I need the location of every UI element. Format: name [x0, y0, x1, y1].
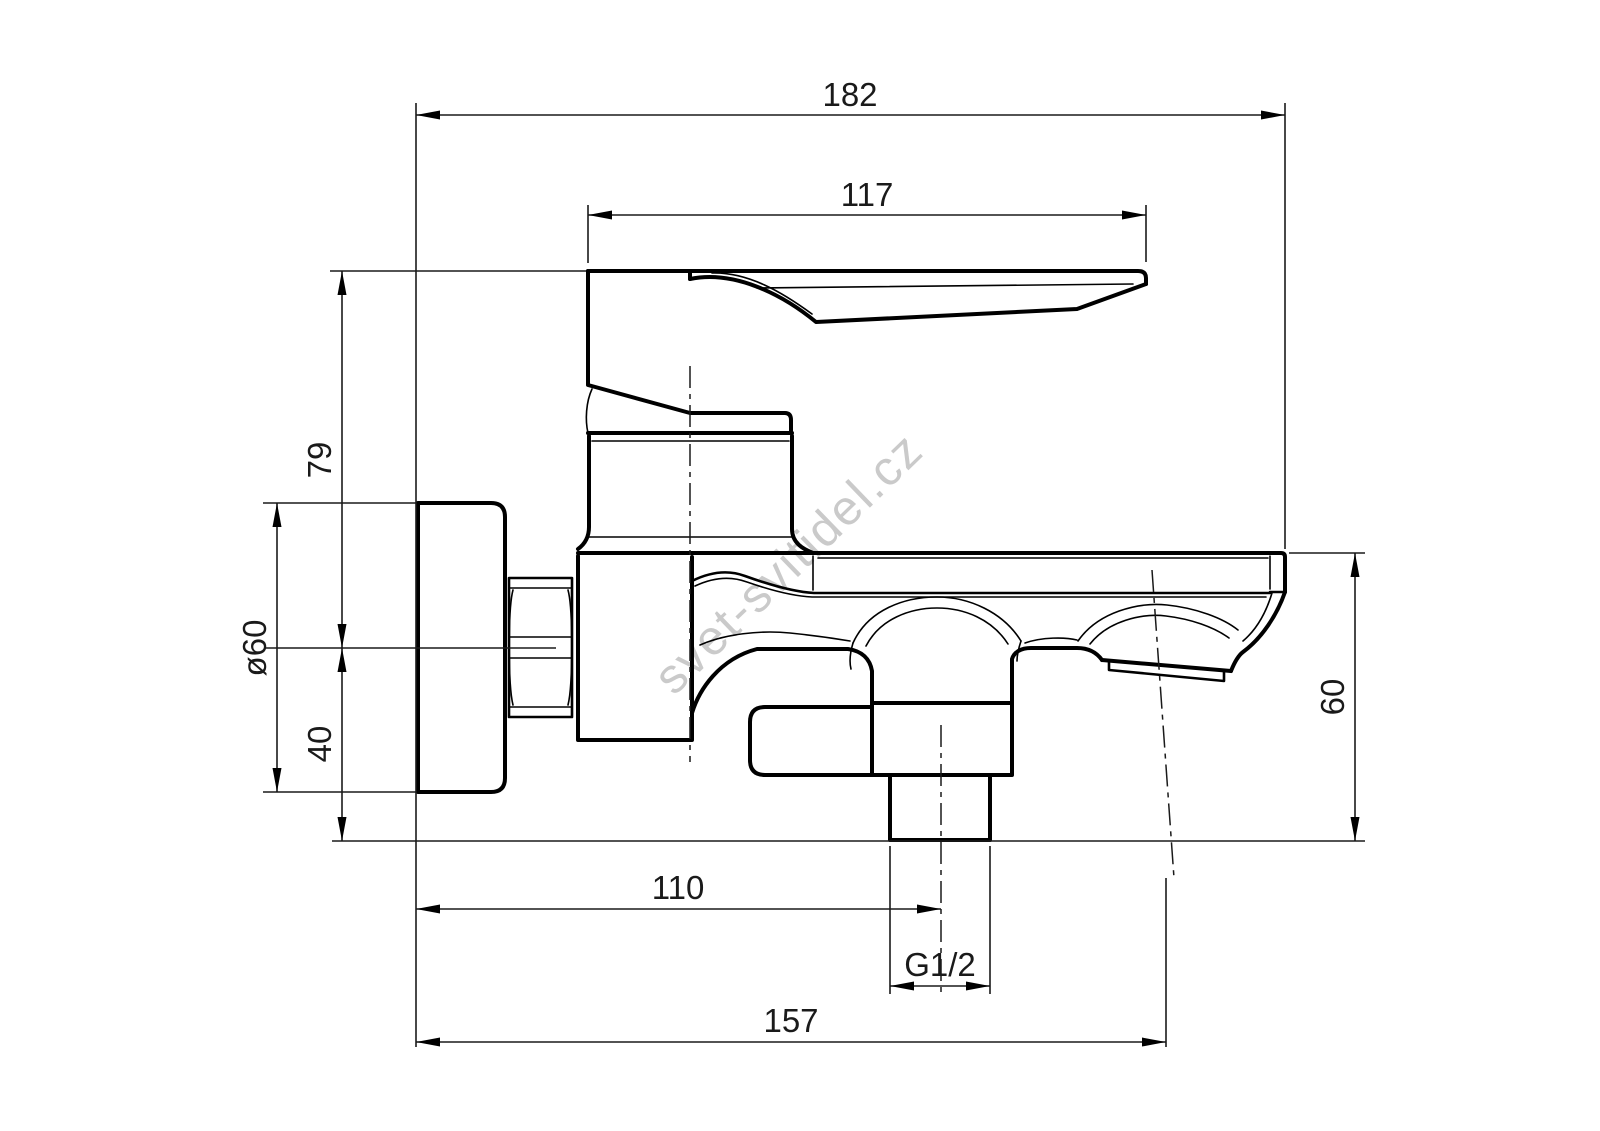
- arch1-base-edges: [850, 641, 1021, 669]
- lever-far-edge: [757, 284, 1133, 288]
- arrow-157-left: [416, 1038, 440, 1047]
- shoulder-far-edge-mid: [1025, 638, 1077, 643]
- spout-end-curve: [1231, 592, 1285, 671]
- arrow-40-top: [338, 648, 347, 672]
- watermark-text: svet-svitidel.cz: [644, 422, 934, 704]
- technical-drawing-canvas: svet-svitidel.cz: [0, 0, 1600, 1131]
- arrow-117-right: [1122, 211, 1146, 220]
- arch2-inner: [1090, 615, 1229, 644]
- cartridge-collar-left: [578, 436, 589, 549]
- spout-end-inner: [1243, 593, 1272, 641]
- dim-label-117: 117: [841, 176, 894, 213]
- cap-left-arc: [586, 389, 592, 433]
- arrow-60-bottom: [1351, 817, 1360, 841]
- center-lines: [264, 366, 1174, 996]
- arrow-60-top: [1351, 553, 1360, 577]
- arch1-outer: [853, 597, 1021, 643]
- dimension-lines: [277, 115, 1355, 1042]
- dim-label-110: 110: [652, 869, 705, 906]
- outlet-block: [872, 703, 1012, 775]
- dimension-arrows: [273, 111, 1360, 1047]
- diverter-knob: [750, 707, 872, 775]
- bath-mixer-outline: [418, 271, 1285, 840]
- spout-underside-mid: [1012, 648, 1102, 703]
- dim-label-182: 182: [822, 76, 877, 113]
- watermark: svet-svitidel.cz: [644, 422, 934, 704]
- dim-label-157: 157: [763, 1002, 818, 1039]
- dim-label-79: 79: [301, 442, 338, 479]
- shower-outlet-pipe: [890, 775, 990, 840]
- arrow-79-bottom: [338, 624, 347, 648]
- arrow-182-left: [416, 111, 440, 120]
- arrow-117-left: [588, 211, 612, 220]
- spout-top: [578, 553, 1285, 592]
- arrow-182-right: [1261, 111, 1285, 120]
- dim-label-60: 60: [1314, 679, 1351, 716]
- arch2-outer: [1078, 604, 1238, 641]
- arrow-dia60-top: [273, 503, 282, 527]
- drawing-page: svet-svitidel.cz: [0, 0, 1600, 1131]
- nozzle-bottom: [1102, 660, 1231, 671]
- arrow-110-left: [416, 905, 440, 914]
- arrow-40-bottom: [338, 817, 347, 841]
- arrow-110-right: [917, 905, 941, 914]
- dim-label-40: 40: [301, 726, 338, 763]
- arrow-dia60-bottom: [273, 768, 282, 792]
- arch1-inner: [866, 608, 1008, 646]
- dim-label-g12: G1/2: [904, 946, 976, 983]
- dim-label-dia60: ø60: [236, 620, 273, 677]
- lever-top: [588, 271, 1146, 284]
- arrow-79-top: [338, 271, 347, 295]
- arrow-157-right: [1142, 1038, 1166, 1047]
